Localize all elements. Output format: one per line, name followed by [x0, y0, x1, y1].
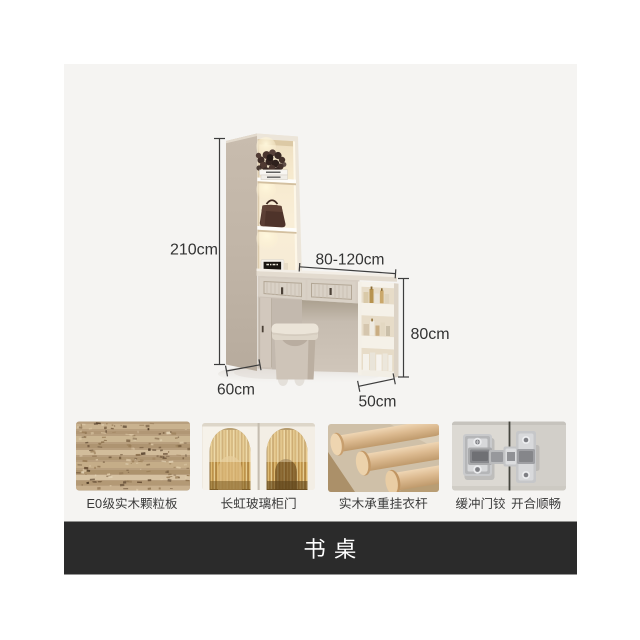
svg-text:50cm: 50cm — [359, 394, 397, 411]
svg-text:210cm: 210cm — [170, 242, 218, 259]
svg-text:80cm: 80cm — [411, 326, 450, 343]
svg-text:E0: E0 — [87, 496, 103, 511]
svg-text:80-120cm: 80-120cm — [316, 252, 385, 269]
svg-text:60cm: 60cm — [217, 382, 255, 399]
